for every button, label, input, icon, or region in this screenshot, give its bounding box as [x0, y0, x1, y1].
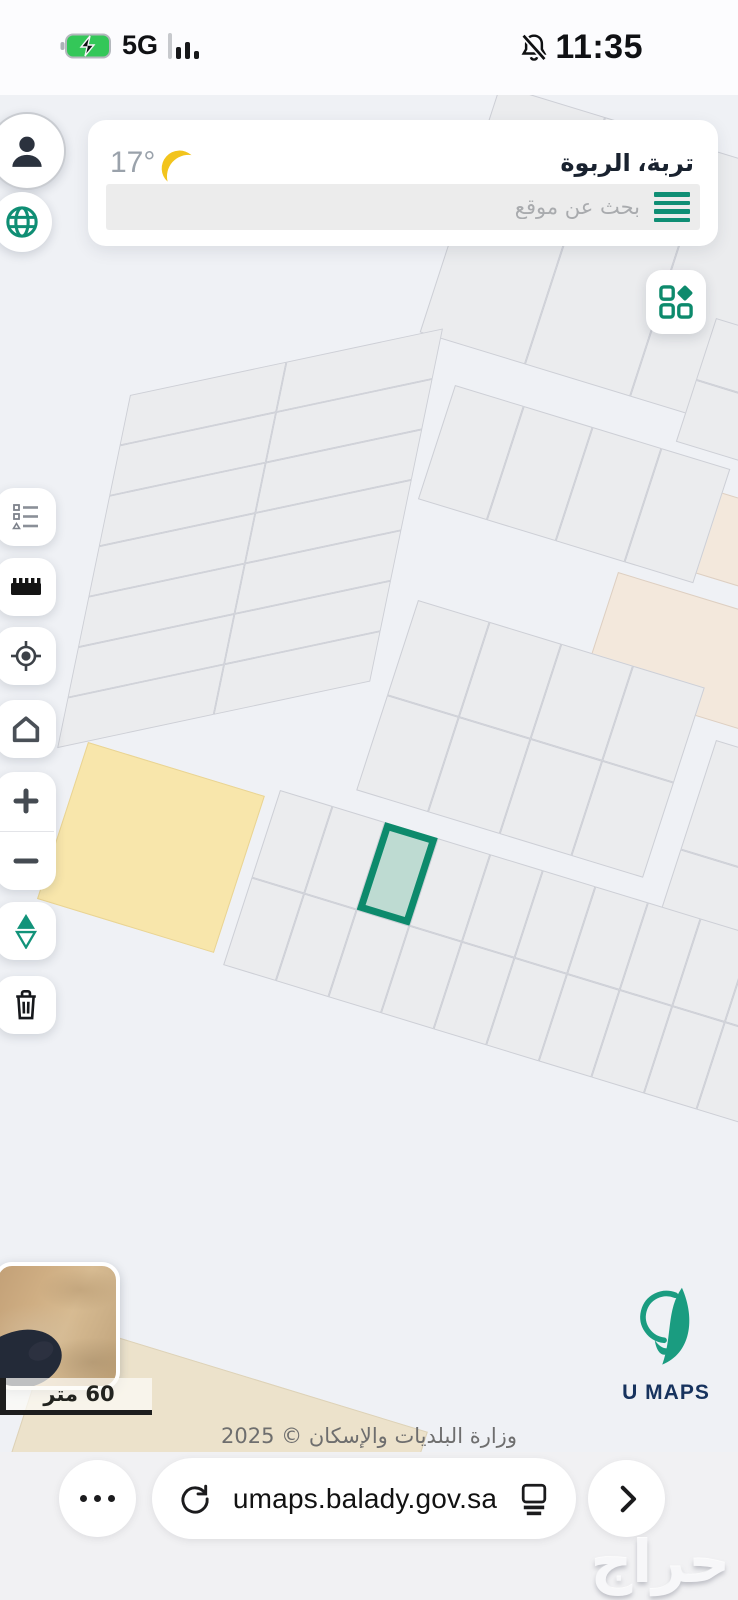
globe-icon [4, 204, 40, 240]
scale-label: 60 متر [43, 1382, 114, 1406]
legend-list-icon [9, 500, 43, 534]
compass-button[interactable] [0, 902, 56, 960]
widgets-icon [657, 283, 695, 321]
signal-bars-icon [168, 33, 199, 59]
status-right-cluster: 11:35 [519, 28, 643, 67]
map-scale-bar: 60 متر [0, 1378, 152, 1415]
url-text: umaps.balady.gov.sa [228, 1483, 502, 1515]
notifications-off-icon [519, 32, 549, 64]
weather-widget: 17° [110, 138, 199, 188]
search-bar[interactable] [106, 184, 700, 230]
home-extent-button[interactable] [0, 700, 56, 758]
clock-time: 11:35 [555, 28, 643, 67]
basemap-thumbnail[interactable] [0, 1262, 120, 1390]
map-attribution: وزارة البلديات والإسكان © 2025 [0, 1424, 738, 1448]
address-bar[interactable]: umaps.balady.gov.sa [152, 1458, 576, 1539]
map-layers-button[interactable] [646, 270, 706, 334]
haraj-watermark: حراج [590, 1528, 730, 1596]
status-left-cluster: 5G [60, 30, 199, 61]
locate-me-button[interactable] [0, 627, 56, 685]
zoom-in-button[interactable] [0, 772, 56, 831]
measure-button[interactable] [0, 558, 56, 616]
compass-needle-icon [11, 913, 41, 949]
status-bar: 5G 11:35 [0, 0, 738, 95]
tabs-icon[interactable] [518, 1481, 550, 1517]
umaps-wordmark: U MAPS [612, 1381, 720, 1405]
browser-more-button[interactable] [59, 1460, 136, 1537]
umaps-logo: U MAPS [612, 1284, 720, 1405]
person-icon [7, 131, 47, 171]
parcel-block-left [57, 328, 443, 748]
yellow-parcel [37, 742, 265, 953]
menu-icon[interactable] [654, 192, 690, 222]
parcel-block-bottom[interactable] [223, 790, 738, 1142]
zoom-control [0, 772, 56, 890]
location-title: تربة، الربوة [560, 149, 694, 178]
browser-forward-button[interactable] [588, 1460, 665, 1537]
trash-icon [10, 988, 42, 1022]
temperature-label: 17° [110, 146, 155, 180]
header-card: 17° تربة، الربوة [88, 120, 718, 246]
legend-button[interactable] [0, 488, 56, 546]
zoom-out-button[interactable] [0, 832, 56, 891]
battery-charging-icon [60, 32, 112, 60]
clear-map-button[interactable] [0, 976, 56, 1034]
chevron-forward-icon [610, 1482, 644, 1516]
home-icon [9, 712, 43, 746]
phone-screen: 5G 11:35 17° [0, 0, 738, 1600]
ruler-icon [8, 572, 44, 602]
reload-icon[interactable] [178, 1482, 212, 1516]
search-input[interactable] [116, 194, 642, 220]
more-dots-icon [80, 1495, 115, 1502]
crosshair-icon [8, 638, 44, 674]
network-type-label: 5G [122, 30, 158, 61]
umaps-pin-icon [627, 1284, 705, 1374]
